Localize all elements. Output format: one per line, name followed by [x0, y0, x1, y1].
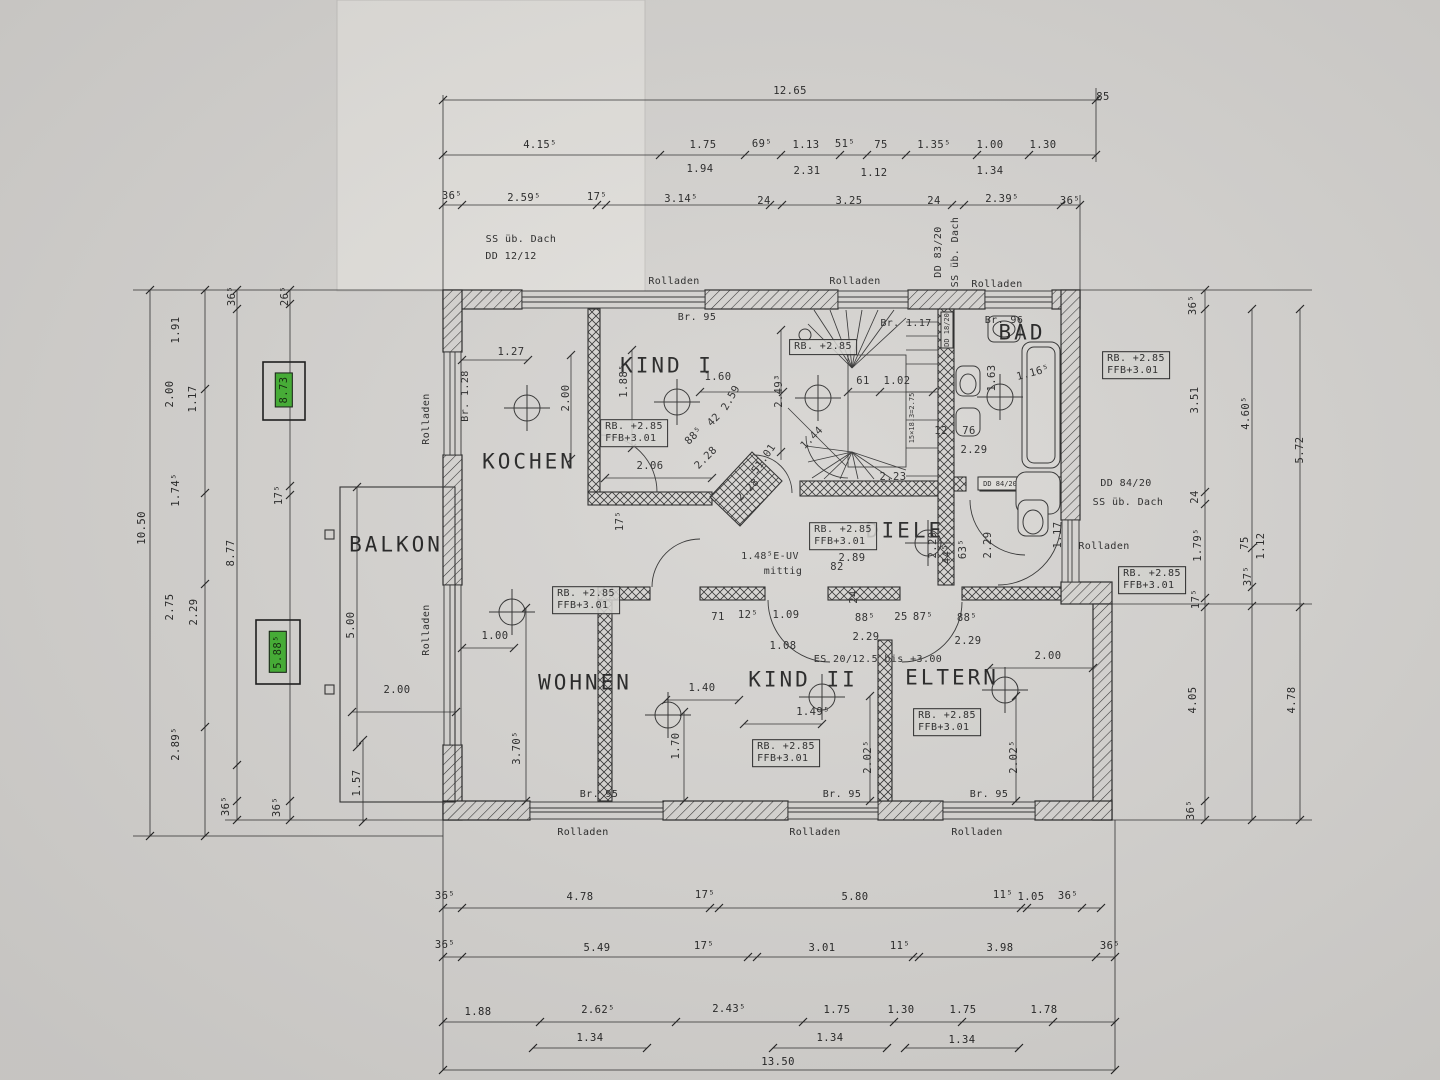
dim-label: Br. 95	[823, 789, 862, 801]
dim-label: 36⁵	[271, 797, 283, 817]
level-box-label: RB. +2.85	[789, 339, 857, 355]
dim-label: 1.34	[817, 1032, 844, 1044]
dim-label: 36⁵	[220, 796, 232, 816]
dim-label: 75	[874, 139, 887, 151]
dim-label: Rolladen	[421, 393, 433, 444]
dim-label: 69⁵	[752, 138, 772, 150]
dim-label: 4.78	[1286, 687, 1298, 714]
dim-label: 1.17	[1052, 522, 1064, 549]
dim-label: DD 12/12	[485, 251, 536, 263]
dim-label: 1.35⁵	[917, 139, 951, 151]
dim-label: 36⁵	[442, 190, 462, 202]
dim-label: Rolladen	[1078, 541, 1129, 553]
dim-label: 1.94	[687, 163, 714, 175]
dim-label: 1.09	[773, 609, 800, 621]
dim-label: 1.49⁵	[796, 706, 830, 718]
dim-label: DD 83/20	[933, 226, 945, 277]
dim-label: 2.29	[961, 444, 988, 456]
dim-label: 1.88⁵	[618, 364, 630, 398]
dim-label: 51⁵	[835, 138, 855, 150]
dim-label: 3.70⁵	[511, 731, 523, 765]
labels-layer: 12.65854.15⁵1.7569⁵1.1351⁵751.35⁵1.001.3…	[0, 0, 1440, 1080]
dim-label: 2.29	[982, 532, 994, 559]
dim-label: 88⁵	[682, 424, 705, 447]
dim-label: DD 84/20	[1100, 478, 1151, 490]
dim-label: Br. 1.28	[460, 370, 472, 421]
dim-label: 2.02⁵	[862, 740, 874, 774]
dim-label: 17⁵	[273, 485, 285, 505]
dim-label: 2.59⁵	[507, 192, 541, 204]
dim-label: 17⁵	[695, 889, 715, 901]
dim-label: Br. 95	[580, 789, 619, 801]
level-box-label: RB. +2.85 FFB+3.01	[1102, 351, 1170, 379]
dim-label: 12.65	[773, 85, 807, 97]
dim-label: 12⁵	[738, 609, 758, 621]
dim-label: 2.00	[384, 684, 411, 696]
dim-label: 3.14⁵	[664, 193, 698, 205]
dim-label: 12	[934, 425, 947, 437]
room-label: KIND I	[620, 354, 714, 379]
dim-label: 1.30	[1030, 139, 1057, 151]
dim-label: 75	[1239, 536, 1251, 549]
dim-label: 1.02	[884, 375, 911, 387]
dim-label: 24	[757, 195, 770, 207]
dim-label: 1.70	[670, 733, 682, 760]
dim-label: Br. 95	[970, 789, 1009, 801]
dim-label: 37⁵	[1242, 566, 1254, 586]
dim-label: 5.49	[584, 942, 611, 954]
dim-label: 2.00	[164, 381, 176, 408]
dim-label: 5.80	[842, 891, 869, 903]
dim-label: 1.27	[498, 346, 525, 358]
dim-label: 2.29	[853, 631, 880, 643]
dim-label: Rolladen	[951, 827, 1002, 839]
dim-label: 1.75	[824, 1004, 851, 1016]
dim-label: 1.13	[793, 139, 820, 151]
room-label: ELTERN	[905, 666, 999, 691]
dim-label: 1.12	[1255, 533, 1267, 560]
dim-label: 2.43⁵	[712, 1003, 746, 1015]
dim-label: 11⁵	[993, 889, 1013, 901]
dim-label: 1.16⁵	[1015, 363, 1051, 384]
dim-label: 10.50	[136, 511, 148, 545]
dim-label: SS üb. Dach	[950, 217, 962, 288]
dim-label: 1.75	[690, 139, 717, 151]
level-box-label: RB. +2.85 FFB+3.01	[809, 522, 877, 550]
floorplan-sheet: 12.65854.15⁵1.7569⁵1.1351⁵751.35⁵1.001.3…	[0, 0, 1440, 1080]
dim-label: 1.30	[888, 1004, 915, 1016]
room-label: KOCHEN	[482, 450, 576, 475]
dim-label: 11⁵	[890, 940, 910, 952]
dim-label: 1.74⁵	[170, 473, 182, 507]
dim-label: 2.29	[927, 532, 939, 559]
dim-label: 15×18.3=2.75	[908, 393, 916, 444]
dim-label: DD 84/20	[983, 480, 1017, 488]
dim-label: Rolladen	[789, 827, 840, 839]
dim-label: 2.00	[560, 385, 572, 412]
dim-label: 1.00	[482, 630, 509, 642]
highlighted-dim-label: 8.73	[275, 373, 293, 408]
level-box-label: RB. +2.85 FFB+3.01	[1118, 566, 1186, 594]
dim-label: 1.05	[1018, 891, 1045, 903]
dim-label: 2.31	[794, 165, 821, 177]
dim-label: 1.12	[861, 167, 888, 179]
dim-label: 1.17	[187, 386, 199, 413]
dim-label: 2.89⁵	[170, 727, 182, 761]
dim-label: Rolladen	[421, 604, 433, 655]
dim-label: 1.78	[1031, 1004, 1058, 1016]
dim-label: 61	[856, 375, 869, 387]
dim-label: 5.00	[345, 612, 357, 639]
dim-label: 36⁵	[435, 890, 455, 902]
dim-label: 2.00	[1035, 650, 1062, 662]
dim-label: 88⁵	[957, 612, 977, 624]
dim-label: 25	[894, 611, 907, 623]
dim-label: 2.28	[692, 444, 720, 472]
dim-label: 36⁵	[1100, 940, 1120, 952]
dim-label: 1.40	[689, 682, 716, 694]
dim-label: 1.79⁵	[1192, 528, 1204, 562]
dim-label: 2.23	[880, 471, 907, 483]
dim-label: 2.39⁵	[985, 193, 1019, 205]
dim-label: 36⁵	[1058, 890, 1078, 902]
dim-label: 1.91	[170, 317, 182, 344]
level-box-label: RB. +2.85 FFB+3.01	[752, 739, 820, 767]
dim-label: 17⁵	[587, 191, 607, 203]
dim-label: 2.29	[955, 635, 982, 647]
dim-label: 1.44	[798, 424, 826, 452]
dim-label: 76	[962, 425, 975, 437]
dim-label: DD 18/20	[943, 313, 951, 347]
dim-label: 8.77	[225, 540, 237, 567]
dim-label: 24	[927, 195, 940, 207]
level-box-label: RB. +2.85 FFB+3.01	[913, 708, 981, 736]
dim-label: 24	[1189, 490, 1201, 503]
dim-label: Rolladen	[829, 276, 880, 288]
dim-label: ES 20/12.5 bis +3.00	[814, 654, 942, 666]
dim-label: 2.59	[719, 383, 743, 412]
dim-label: 51.01	[749, 442, 778, 477]
dim-label: 5.72	[1294, 437, 1306, 464]
dim-label: SS üb. Dach	[1093, 497, 1164, 509]
dim-label: 2.62⁵	[581, 1004, 615, 1016]
dim-label: 24	[848, 590, 860, 603]
dim-label: SS üb. Dach	[486, 234, 557, 246]
level-box-label: RB. +2.85 FFB+3.01	[600, 419, 668, 447]
dim-label: 4.60⁵	[1240, 396, 1252, 430]
dim-label: 3.51	[1189, 387, 1201, 414]
dim-label: 36⁵	[226, 286, 238, 306]
dim-label: 3.98	[987, 942, 1014, 954]
dim-label: 36⁵	[435, 939, 455, 951]
dim-label: 1.88	[465, 1006, 492, 1018]
dim-label: 26⁵	[279, 286, 291, 306]
dim-label: 1.34	[949, 1034, 976, 1046]
dim-label: 1.00	[977, 139, 1004, 151]
dim-label: 88⁵	[855, 612, 875, 624]
dim-label: 1.75	[950, 1004, 977, 1016]
dim-label: 3.25	[836, 195, 863, 207]
dim-label: Rolladen	[971, 279, 1022, 291]
dim-label: 2.49³	[773, 374, 785, 408]
dim-label: 2.06	[637, 460, 664, 472]
dim-label: Br. 1.17	[880, 318, 931, 330]
dim-label: 71	[711, 611, 724, 623]
dim-label: 2.28	[734, 476, 762, 504]
dim-label: 44⁵	[941, 544, 953, 564]
dim-label: 36⁵	[1187, 295, 1199, 315]
dim-label: 87⁵	[913, 611, 933, 623]
dim-label: 42	[705, 411, 723, 429]
dim-label: 36⁵	[1060, 195, 1080, 207]
dim-label: 17⁵	[694, 940, 714, 952]
dim-label: 4.05	[1187, 687, 1199, 714]
dim-label: 1.08	[770, 640, 797, 652]
dim-label: 85	[1096, 91, 1109, 103]
dim-label: mittig	[764, 566, 803, 578]
dim-label: 2.02⁵	[1008, 740, 1020, 774]
dim-label: 1.34	[577, 1032, 604, 1044]
dim-label: 36⁵	[1185, 800, 1197, 820]
room-label: WOHNEN	[538, 671, 632, 696]
dim-label: 1.63	[986, 365, 998, 392]
dim-label: 3.01	[809, 942, 836, 954]
dim-label: 4.78	[567, 891, 594, 903]
dim-label: 17⁵	[1190, 589, 1202, 609]
dim-label: 4.15⁵	[523, 139, 557, 151]
dim-label: 2.75	[164, 594, 176, 621]
dim-label: Rolladen	[648, 276, 699, 288]
room-label: BAD	[999, 321, 1046, 346]
room-label: KIND II	[748, 668, 858, 693]
dim-label: 63⁵	[957, 539, 969, 559]
dim-label: 1.34	[977, 165, 1004, 177]
dim-label: 17⁵	[614, 511, 626, 531]
dim-label: 2.29	[188, 599, 200, 626]
dim-label: 82	[830, 561, 843, 573]
dim-label: 1.60	[705, 371, 732, 383]
highlighted-dim-label: 5.88⁵	[269, 631, 287, 673]
dim-label: 13.50	[761, 1056, 795, 1068]
dim-label: Rolladen	[557, 827, 608, 839]
dim-label: 1.57	[351, 770, 363, 797]
dim-label: Br. 95	[678, 312, 717, 324]
room-label: BALKON	[349, 533, 443, 558]
level-box-label: RB. +2.85 FFB+3.01	[552, 586, 620, 614]
dim-label: 1.48⁵E-UV	[741, 551, 799, 563]
